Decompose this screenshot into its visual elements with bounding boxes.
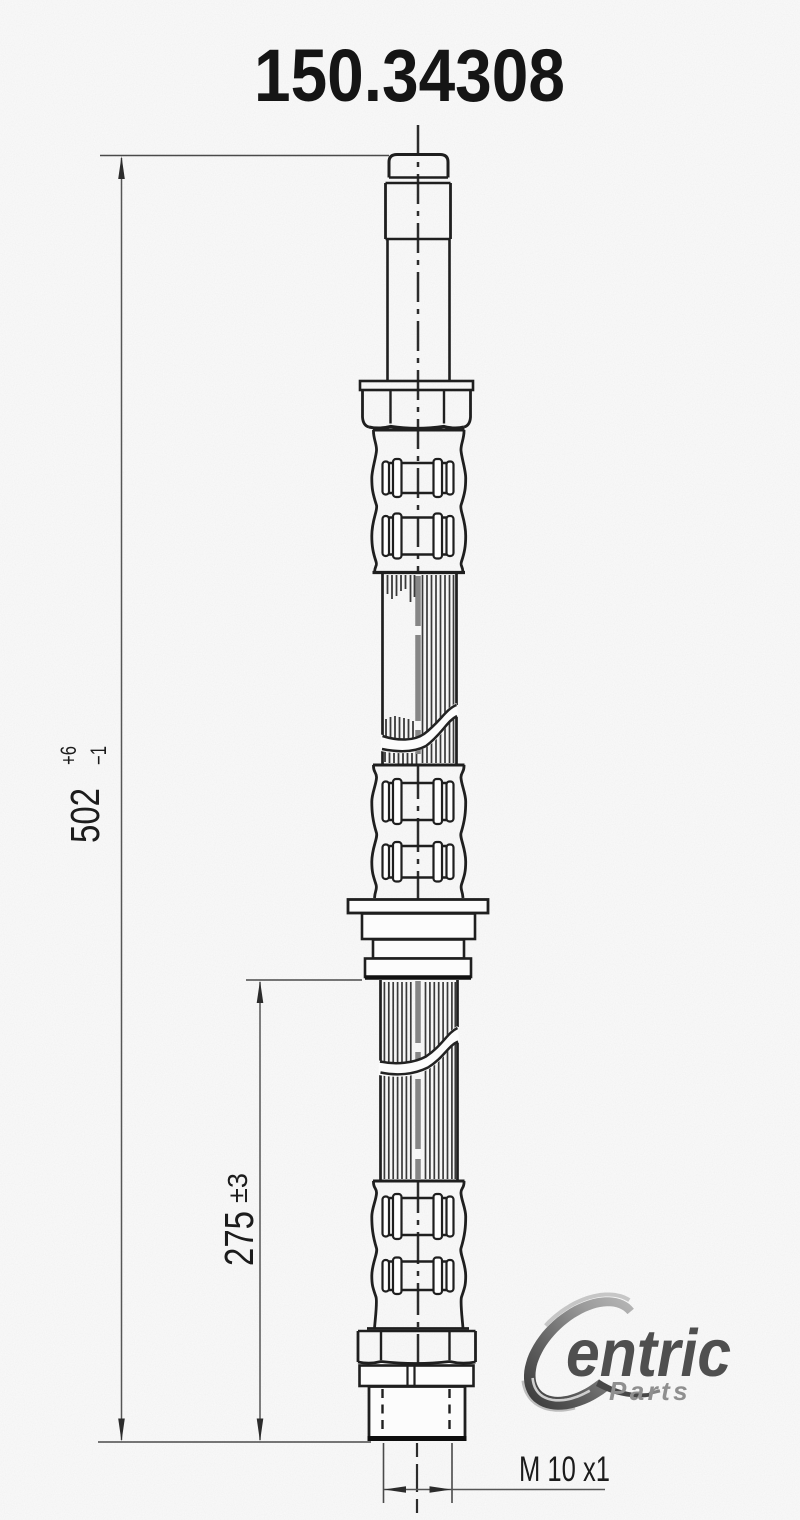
- svg-text:275: 275: [216, 1211, 262, 1266]
- svg-text:±3: ±3: [222, 1173, 253, 1203]
- svg-text:150.34308: 150.34308: [254, 34, 565, 116]
- svg-text:+6: +6: [56, 746, 81, 765]
- svg-text:−1: −1: [86, 746, 111, 765]
- svg-text:M 10 x1: M 10 x1: [519, 1450, 610, 1489]
- svg-text:Parts: Parts: [609, 1376, 691, 1406]
- svg-text:502: 502: [62, 788, 108, 843]
